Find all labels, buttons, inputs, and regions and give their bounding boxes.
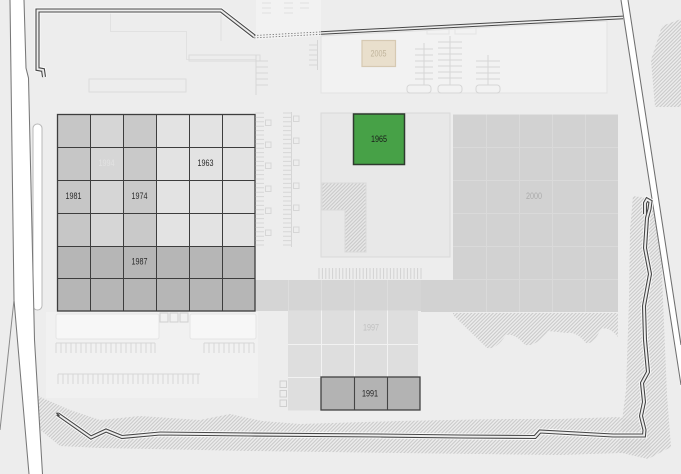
svg-text:1997: 1997 xyxy=(363,323,379,333)
svg-text:1974: 1974 xyxy=(132,191,148,201)
svg-text:1994: 1994 xyxy=(99,158,115,168)
svg-text:1991: 1991 xyxy=(362,389,378,399)
svg-text:1987: 1987 xyxy=(132,256,148,266)
svg-text:1981: 1981 xyxy=(66,191,82,201)
svg-text:2000: 2000 xyxy=(526,191,542,201)
svg-text:1963: 1963 xyxy=(198,158,214,168)
svg-text:1965: 1965 xyxy=(371,134,387,144)
svg-text:2005: 2005 xyxy=(371,49,387,59)
